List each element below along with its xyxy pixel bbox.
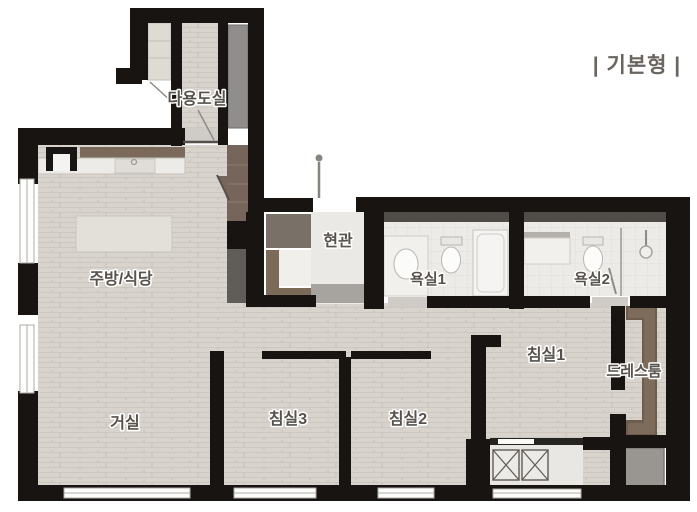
room-label-entrance: 현관 — [323, 231, 353, 250]
living-balcony-window — [64, 488, 190, 498]
toilet1-tank — [441, 237, 462, 245]
entry-step-threshold — [311, 284, 364, 303]
shower-head-symbol — [640, 246, 652, 258]
plan-variant-label: | 기본형 | — [593, 53, 681, 77]
shoe-closet-upper — [266, 214, 311, 248]
kitchen-upper-cabinet — [80, 147, 185, 159]
bath2-bulkhead — [524, 212, 666, 222]
bath1-bulkhead — [384, 212, 509, 222]
toilet1-symbol — [442, 247, 461, 273]
entry-closet-nook — [279, 250, 311, 286]
utility-floor — [182, 23, 218, 142]
bedroom3-window — [234, 488, 316, 498]
front-door-pivot — [316, 155, 323, 162]
room-label-utility: 다용도실 — [168, 90, 227, 108]
room-label-bathroom2: 욕실2 — [574, 271, 610, 288]
bath2-mirror — [524, 232, 570, 238]
kitchen-island — [76, 216, 172, 252]
room-label-bedroom3: 침실3 — [269, 409, 307, 428]
room-label-living: 거실 — [110, 414, 139, 432]
room-label-bathroom1: 욕실1 — [410, 271, 446, 288]
room-label-bedroom1: 침실1 — [527, 345, 565, 364]
bedroom2-window — [378, 488, 434, 498]
bath2-vanity — [524, 238, 570, 264]
duct-panel — [228, 25, 248, 128]
entry-bench-side — [266, 250, 279, 288]
bathtub-symbol — [473, 230, 508, 296]
left-window-2 — [20, 325, 34, 393]
ac-room-window — [493, 489, 581, 498]
kitchen-tall-cabinet — [227, 249, 246, 303]
room-label-dressroom: 드레스룸 — [606, 363, 661, 380]
stove-inner — [53, 154, 70, 171]
kitchen-sink — [115, 159, 155, 173]
bath1-door-threshold — [388, 297, 428, 307]
floorplan-page: 다용도실 주방/식당 현관 욕실1 욕실2 침실1 드레스룸 거실 침실3 침실… — [0, 0, 697, 512]
service-shaft — [624, 448, 664, 487]
left-window-1 — [20, 179, 34, 263]
utility-shelf-niche — [148, 23, 171, 80]
toilet2-symbol — [584, 246, 603, 272]
kitchen-living-floor — [38, 145, 227, 485]
toilet2-tank — [583, 237, 603, 245]
room-label-kitchen-dining: 주방/식당 — [89, 270, 153, 288]
pantry-cabinet — [227, 145, 248, 221]
ac-room-slider — [498, 439, 534, 444]
floorplan-svg: 다용도실 주방/식당 현관 욕실1 욕실2 침실1 드레스룸 거실 침실3 침실… — [0, 0, 697, 512]
bath2-door-threshold — [592, 297, 628, 307]
room-label-bedroom2: 침실2 — [389, 409, 427, 428]
